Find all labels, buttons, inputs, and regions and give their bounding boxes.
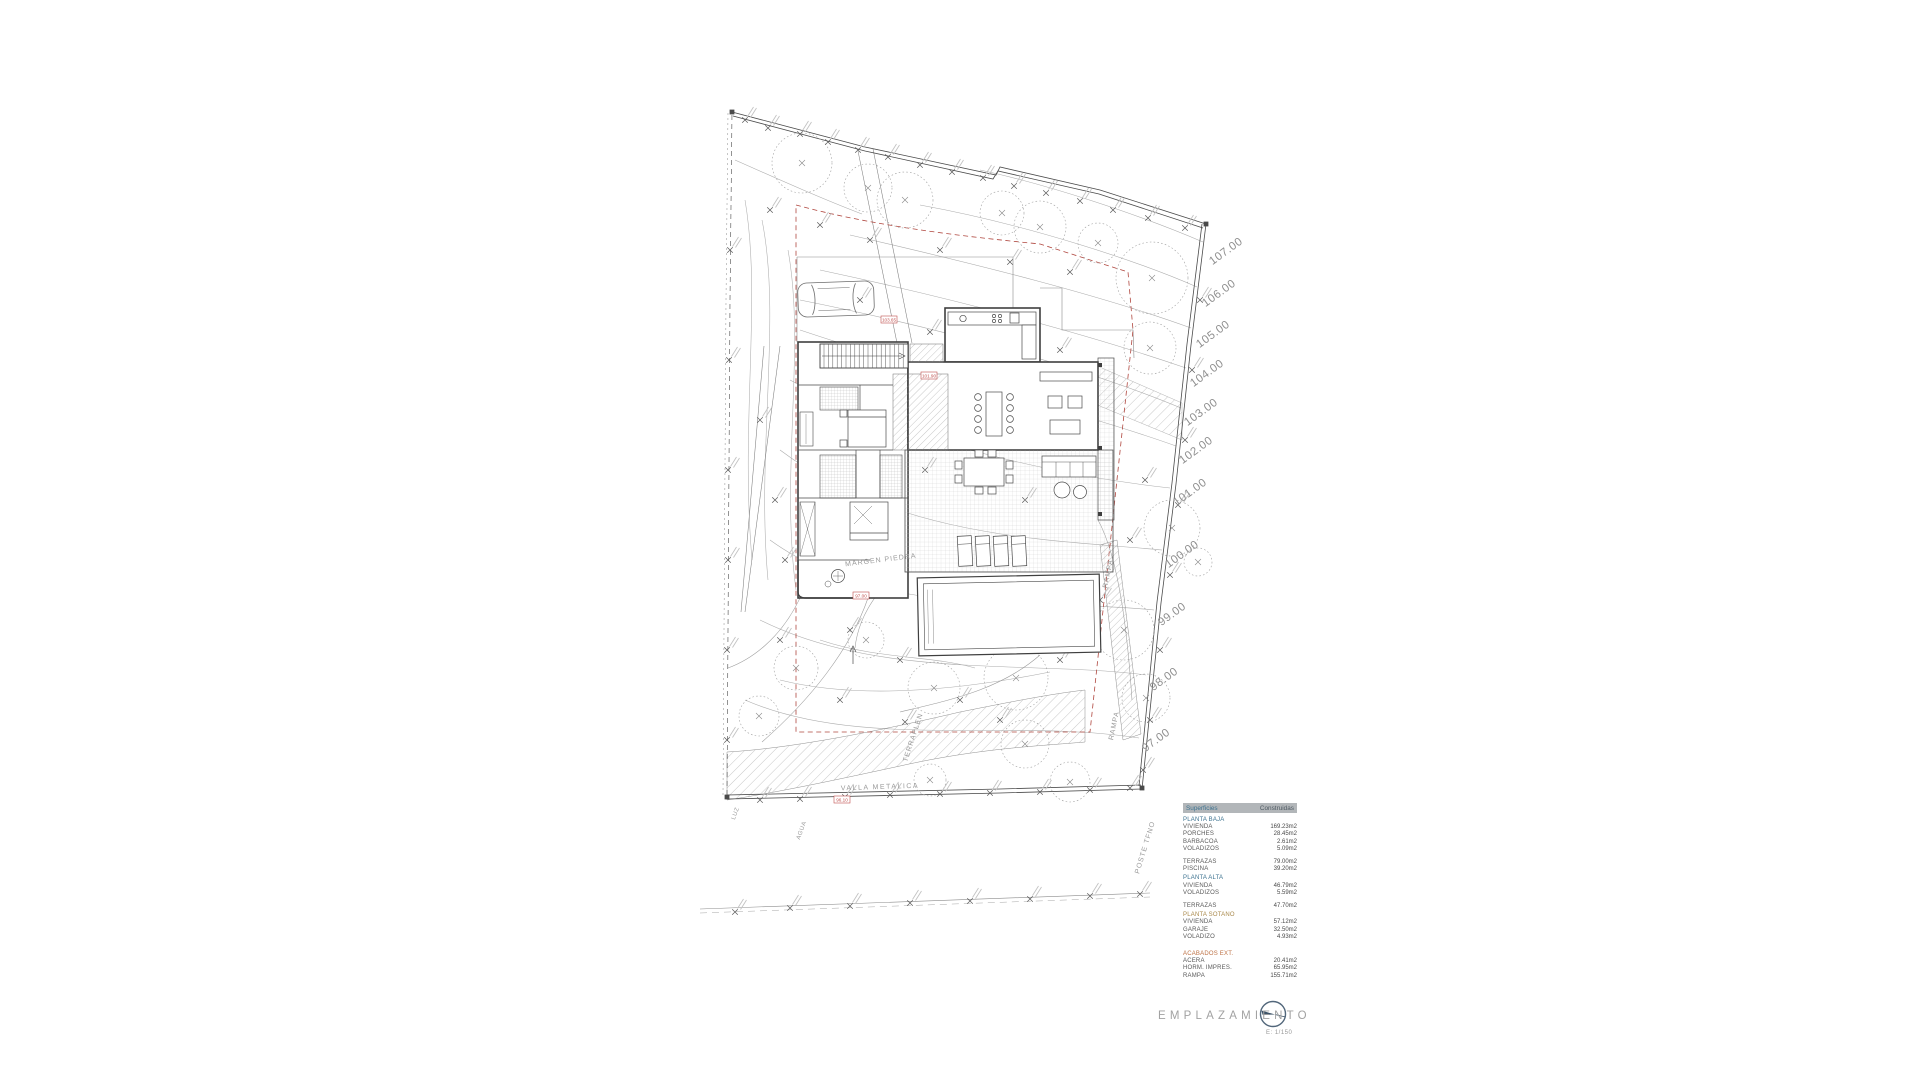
tree-symbol	[848, 622, 884, 658]
sun-lounger	[957, 536, 973, 567]
elevation-label: 102.00	[1177, 434, 1215, 466]
row-value: 4.93m2	[1277, 934, 1297, 941]
elevation-label: 101.00	[1171, 476, 1209, 508]
pool	[917, 574, 1101, 656]
table-row: TERRAZAS47.70m2	[1183, 903, 1297, 910]
bathroom	[820, 387, 858, 410]
level-marker-text: 96.10	[836, 798, 848, 803]
table-row: VIVIENDA169.23m2	[1183, 824, 1297, 831]
bathroom	[880, 455, 902, 498]
table-row: TERRAZAS79.00m2	[1183, 859, 1297, 866]
survey-marker	[1027, 886, 1041, 902]
site-plan-drawing: 103.65101.9097.0096.10 VALLA METALICAPOS…	[0, 0, 1920, 1080]
row-value: 2.61m2	[1277, 839, 1297, 846]
areas-table-header: Superficies Construidas	[1183, 803, 1297, 813]
elevation-label: 104.00	[1188, 357, 1226, 389]
level-marker-text: 101.90	[922, 374, 936, 379]
bar-stool	[1007, 427, 1014, 434]
tree-symbol	[1050, 762, 1090, 802]
survey-marker	[857, 287, 871, 303]
row-label: RAMPA	[1183, 973, 1205, 980]
bathroom	[820, 455, 856, 498]
row-label: VIVIENDA	[1183, 883, 1213, 890]
row-label: PISCINA	[1183, 866, 1208, 873]
survey-marker	[927, 319, 941, 335]
side-porch	[1098, 358, 1114, 520]
survey-marker	[724, 727, 738, 743]
tree-symbol	[914, 764, 946, 796]
row-value: 5.09m2	[1277, 846, 1297, 853]
survey-marker	[1142, 467, 1156, 483]
level-marker: 96.10	[834, 796, 850, 803]
row-value: 39.20m2	[1274, 866, 1297, 873]
areas-table-rows: PLANTA BAJAVIVIENDA169.23m2PORCHES28.45m…	[1183, 817, 1297, 980]
bar-stool	[1007, 394, 1014, 401]
row-value: 46.79m2	[1274, 883, 1297, 890]
house-plan	[798, 308, 1114, 664]
table-section-row: PLANTA ALTA	[1183, 875, 1297, 882]
row-value: 57.12m2	[1274, 919, 1297, 926]
row-label: ACERA	[1183, 958, 1205, 965]
sun-lounger	[1011, 536, 1027, 567]
survey-marker	[1087, 883, 1101, 899]
elevation-label: 98.00	[1148, 666, 1180, 694]
survey-marker	[724, 637, 738, 653]
tree-symbol	[908, 662, 960, 714]
bed	[850, 502, 888, 540]
survey-marker	[1137, 881, 1151, 897]
tree-symbol	[739, 696, 779, 736]
elevation-label: 105.00	[1194, 318, 1232, 350]
survey-marker	[1110, 197, 1124, 213]
row-value: 169.23m2	[1270, 824, 1297, 831]
sun-lounger	[975, 536, 991, 567]
table-row: HORM. IMPRES.65.95m2	[1183, 965, 1297, 972]
drawing-title: EMPLAZAMIENTO	[1158, 1010, 1311, 1022]
tree-symbol	[772, 133, 832, 193]
areas-table: Superficies Construidas PLANTA BAJAVIVIE…	[1183, 803, 1297, 980]
elevation-label: 97.00	[1140, 727, 1172, 755]
survey-marker	[1067, 259, 1081, 275]
row-label: PLANTA BAJA	[1183, 817, 1224, 824]
plan-label: AGUA	[796, 821, 808, 841]
bar-stool	[1007, 416, 1014, 423]
survey-marker	[967, 888, 981, 904]
survey-marker	[725, 547, 739, 563]
row-label: TERRAZAS	[1183, 903, 1217, 910]
survey-marker	[726, 347, 740, 363]
overhang-hatch	[910, 344, 943, 362]
bar-stool	[975, 416, 982, 423]
header-superficies: Superficies	[1186, 805, 1218, 812]
level-marker: 97.00	[853, 592, 869, 599]
row-label: PORCHES	[1183, 831, 1214, 838]
table-section-row: PLANTA BAJA	[1183, 817, 1297, 824]
row-value: 79.00m2	[1274, 859, 1297, 866]
tree-symbol	[980, 191, 1024, 235]
table-row: VOLADIZOS5.59m2	[1183, 890, 1297, 897]
row-label: ACABADOS EXT.	[1183, 951, 1233, 958]
survey-marker	[767, 197, 781, 213]
survey-marker	[907, 890, 921, 906]
header-construidas: Construidas	[1260, 805, 1294, 812]
row-label: BARBACOA	[1183, 839, 1218, 846]
survey-marker	[1037, 779, 1051, 795]
survey-marker	[1127, 527, 1141, 543]
parked-car	[797, 281, 874, 318]
row-label: VOLADIZO	[1183, 934, 1215, 941]
table-row: BARBACOA2.61m2	[1183, 839, 1297, 846]
survey-marker	[1182, 427, 1196, 443]
tree-symbol	[1078, 223, 1118, 263]
elevation-labels: 107.00106.00105.00104.00103.00102.00101.…	[1140, 235, 1245, 754]
elevation-label: 106.00	[1200, 277, 1238, 309]
elevation-label: 107.00	[1207, 235, 1245, 267]
plan-label: LUZ	[731, 807, 741, 821]
tree-symbol	[844, 164, 892, 212]
survey-marker	[817, 212, 831, 228]
survey-marker	[1057, 337, 1071, 353]
bar-stool	[975, 427, 982, 434]
level-marker: 103.65	[881, 316, 897, 323]
table-row: VOLADIZO4.93m2	[1183, 934, 1297, 941]
sun-lounger	[993, 536, 1009, 567]
bar-stool	[975, 405, 982, 412]
survey-marker	[757, 407, 771, 423]
row-label: VIVIENDA	[1183, 824, 1213, 831]
tree-symbol	[1014, 201, 1066, 253]
plan-label: RAMPA	[1108, 711, 1121, 741]
table-section-row: PLANTA SOTANO	[1183, 912, 1297, 919]
survey-marker	[772, 487, 786, 503]
table-row: PISCINA39.20m2	[1183, 866, 1297, 873]
row-label: VOLADIZOS	[1183, 846, 1219, 853]
row-label: TERRAZAS	[1183, 859, 1217, 866]
table-row: ACERA20.41m2	[1183, 958, 1297, 965]
drawing-scale: E: 1/150	[1266, 1030, 1292, 1036]
table-row: VOLADIZOS5.09m2	[1183, 846, 1297, 853]
table-section-row: ACABADOS EXT.	[1183, 951, 1297, 958]
plan-label: POSTE TFNO	[1134, 820, 1157, 874]
row-label: VOLADIZOS	[1183, 890, 1219, 897]
survey-marker	[787, 895, 801, 911]
row-label: GARAJE	[1183, 927, 1208, 934]
tree-symbol	[877, 172, 933, 228]
row-label: HORM. IMPRES.	[1183, 965, 1232, 972]
level-marker-text: 103.65	[882, 318, 896, 323]
table-row: RAMPA155.71m2	[1183, 973, 1297, 980]
road-line	[700, 893, 1150, 913]
row-value: 20.41m2	[1274, 958, 1297, 965]
survey-marker	[847, 893, 861, 909]
row-label: PLANTA ALTA	[1183, 875, 1223, 882]
survey-marker	[725, 457, 739, 473]
row-label: VIVIENDA	[1183, 919, 1213, 926]
overhang-hatch	[893, 374, 948, 450]
survey-marker	[777, 627, 791, 643]
site-plan-page: 103.65101.9097.0096.10 VALLA METALICAPOS…	[0, 0, 1920, 1080]
tree-symbol	[1116, 242, 1188, 314]
survey-marker	[797, 786, 811, 802]
bar-stool	[1007, 405, 1014, 412]
row-value: 28.45m2	[1274, 831, 1297, 838]
level-marker-text: 97.00	[855, 594, 867, 599]
bar-stool	[975, 394, 982, 401]
elevation-label: 103.00	[1182, 396, 1220, 428]
table-row: VIVIENDA57.12m2	[1183, 919, 1297, 926]
row-value: 47.70m2	[1274, 903, 1297, 910]
elevation-label: 100.00	[1163, 538, 1201, 570]
survey-marker	[1140, 757, 1154, 773]
row-value: 65.95m2	[1274, 965, 1297, 972]
entry-stairs	[820, 344, 908, 368]
survey-marker	[937, 237, 951, 253]
row-label: PLANTA SOTANO	[1183, 912, 1235, 919]
row-value: 5.59m2	[1277, 890, 1297, 897]
table-row: VIVIENDA46.79m2	[1183, 883, 1297, 890]
level-marker: 101.90	[921, 372, 937, 379]
table-row: PORCHES28.45m2	[1183, 831, 1297, 838]
table-row: GARAJE32.50m2	[1183, 927, 1297, 934]
kitchen-island	[986, 392, 1002, 436]
survey-marker	[1157, 637, 1171, 653]
row-value: 155.71m2	[1270, 973, 1297, 980]
survey-marker	[732, 899, 746, 915]
survey-marker	[727, 237, 741, 253]
survey-marker	[797, 121, 811, 137]
row-value: 32.50m2	[1274, 927, 1297, 934]
